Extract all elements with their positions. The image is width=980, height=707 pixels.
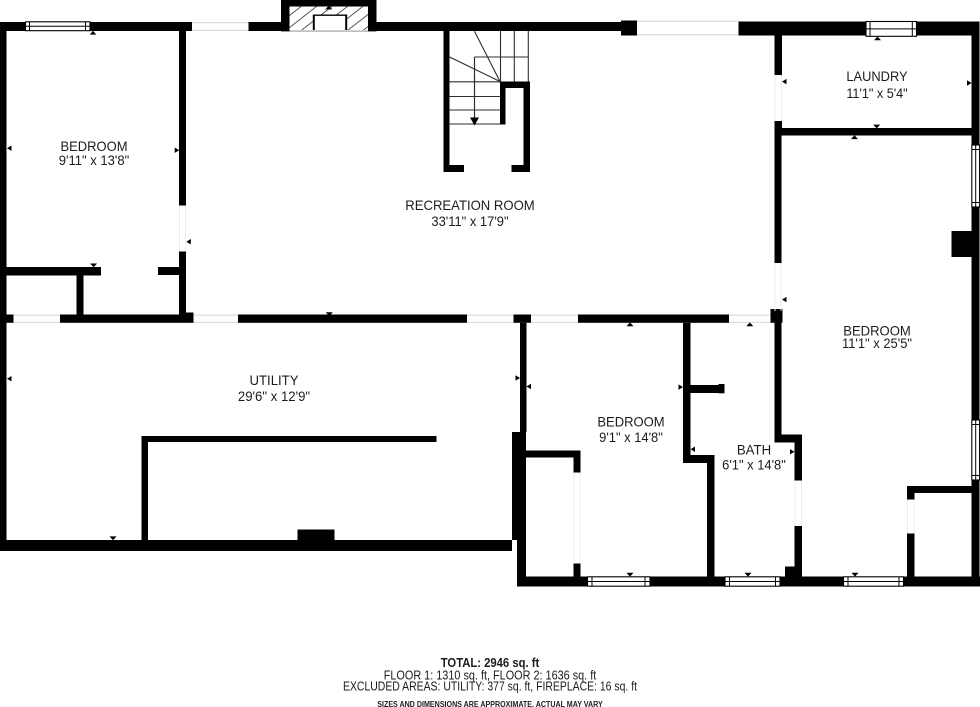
svg-text:6'1" x 14'8": 6'1" x 14'8" [722,457,786,473]
svg-text:EXCLUDED AREAS: UTILITY: 377 s: EXCLUDED AREAS: UTILITY: 377 sq. ft, FIR… [343,679,637,693]
svg-text:RECREATION ROOM: RECREATION ROOM [405,197,535,213]
svg-text:BEDROOM: BEDROOM [597,414,664,430]
svg-text:UTILITY: UTILITY [250,372,300,388]
svg-text:29'6" x 12'9": 29'6" x 12'9" [238,388,310,404]
svg-text:SIZES AND DIMENSIONS ARE APPRO: SIZES AND DIMENSIONS ARE APPROXIMATE, AC… [377,700,603,707]
svg-text:BATH: BATH [737,442,771,458]
svg-text:11'1" x 25'5": 11'1" x 25'5" [842,335,912,351]
svg-text:9'11" x 13'8": 9'11" x 13'8" [59,152,130,168]
svg-text:11'1" x 5'4": 11'1" x 5'4" [846,85,907,101]
svg-text:9'1" x 14'8": 9'1" x 14'8" [599,429,663,445]
svg-text:LAUNDRY: LAUNDRY [846,68,908,84]
svg-text:33'11" x 17'9": 33'11" x 17'9" [431,213,508,229]
